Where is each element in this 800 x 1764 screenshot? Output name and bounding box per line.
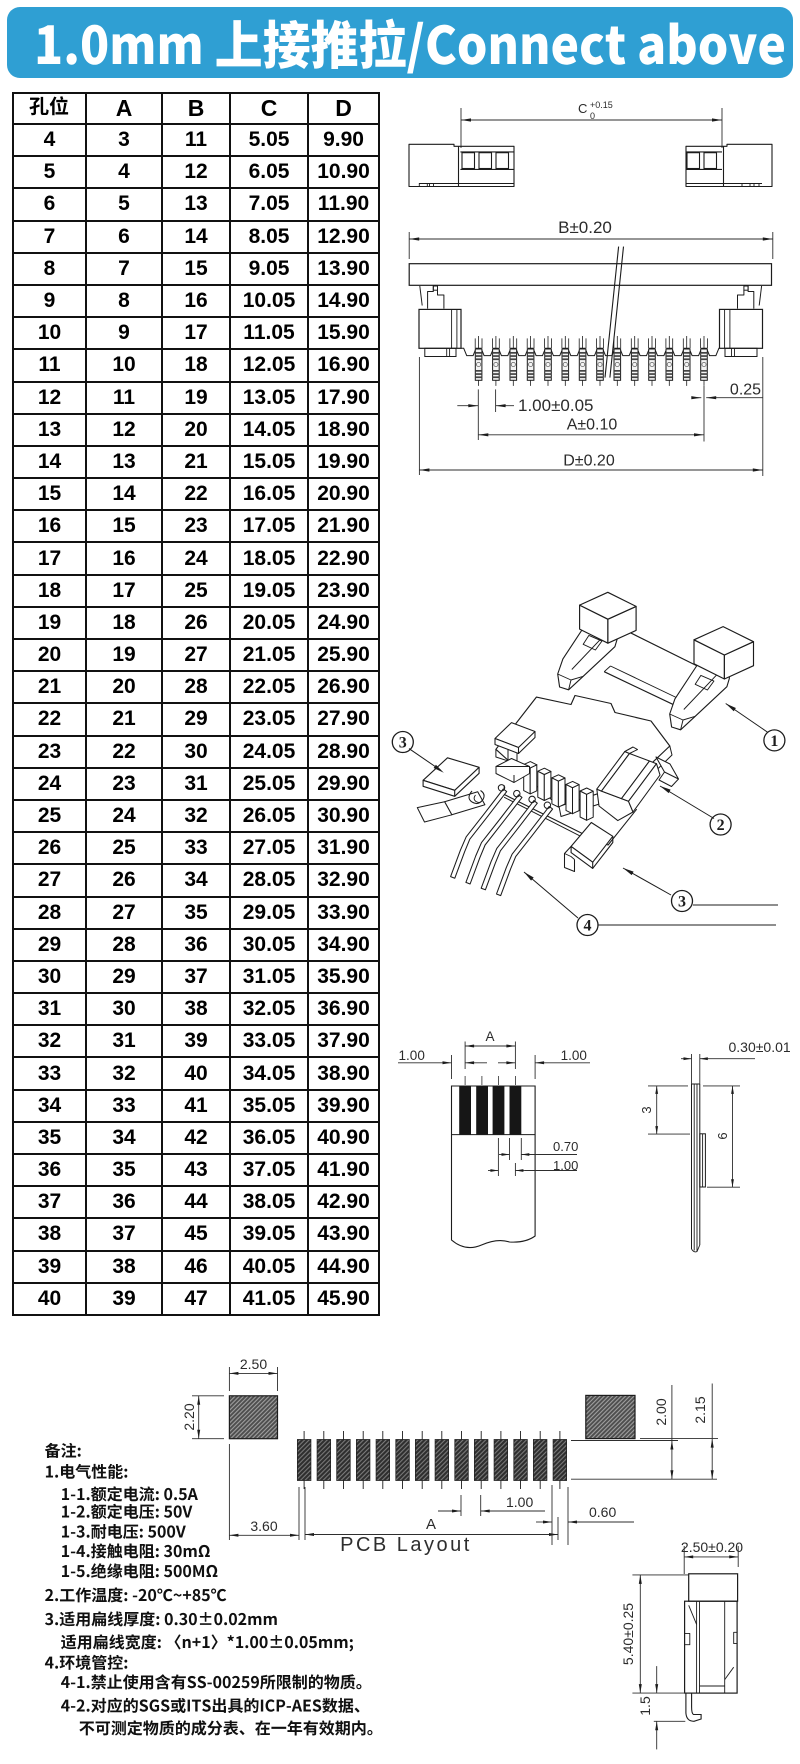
- svg-text:1.00: 1.00: [399, 1048, 425, 1063]
- svg-text:1.00: 1.00: [553, 1158, 578, 1173]
- svg-text:0.30±0.01: 0.30±0.01: [729, 1039, 791, 1055]
- svg-text:3.60: 3.60: [250, 1518, 277, 1534]
- svg-text:2.50±0.20: 2.50±0.20: [681, 1539, 743, 1555]
- svg-text:1.00: 1.00: [506, 1494, 533, 1510]
- svg-text:0.25: 0.25: [730, 382, 761, 399]
- svg-text:C: C: [578, 101, 587, 116]
- svg-text:1.00±0.05: 1.00±0.05: [518, 396, 594, 415]
- svg-text:6: 6: [715, 1132, 730, 1139]
- svg-text:3: 3: [399, 735, 407, 752]
- svg-text:2: 2: [717, 817, 725, 834]
- svg-text:A: A: [426, 1516, 436, 1533]
- svg-text:0: 0: [590, 111, 595, 121]
- svg-text:B±0.20: B±0.20: [558, 218, 612, 237]
- svg-text:1: 1: [770, 733, 778, 750]
- svg-text:0.60: 0.60: [589, 1504, 616, 1520]
- svg-text:3: 3: [639, 1106, 654, 1113]
- svg-text:3: 3: [678, 894, 686, 911]
- svg-text:2.50: 2.50: [240, 1356, 267, 1372]
- svg-text:1.5: 1.5: [637, 1696, 653, 1716]
- svg-text:A±0.10: A±0.10: [567, 417, 618, 434]
- svg-text:2.00: 2.00: [653, 1398, 669, 1425]
- svg-text:4: 4: [584, 918, 592, 935]
- svg-text:0.70: 0.70: [553, 1139, 578, 1154]
- svg-text:D±0.20: D±0.20: [563, 453, 615, 470]
- svg-text:5.40±0.25: 5.40±0.25: [620, 1603, 636, 1665]
- svg-text:2.15: 2.15: [692, 1396, 708, 1423]
- svg-text:2.20: 2.20: [181, 1403, 197, 1430]
- svg-text:A: A: [485, 1029, 494, 1044]
- svg-text:+0.15: +0.15: [590, 100, 613, 110]
- svg-text:PCB Layout: PCB Layout: [340, 1534, 472, 1556]
- svg-text:1.00: 1.00: [561, 1048, 587, 1063]
